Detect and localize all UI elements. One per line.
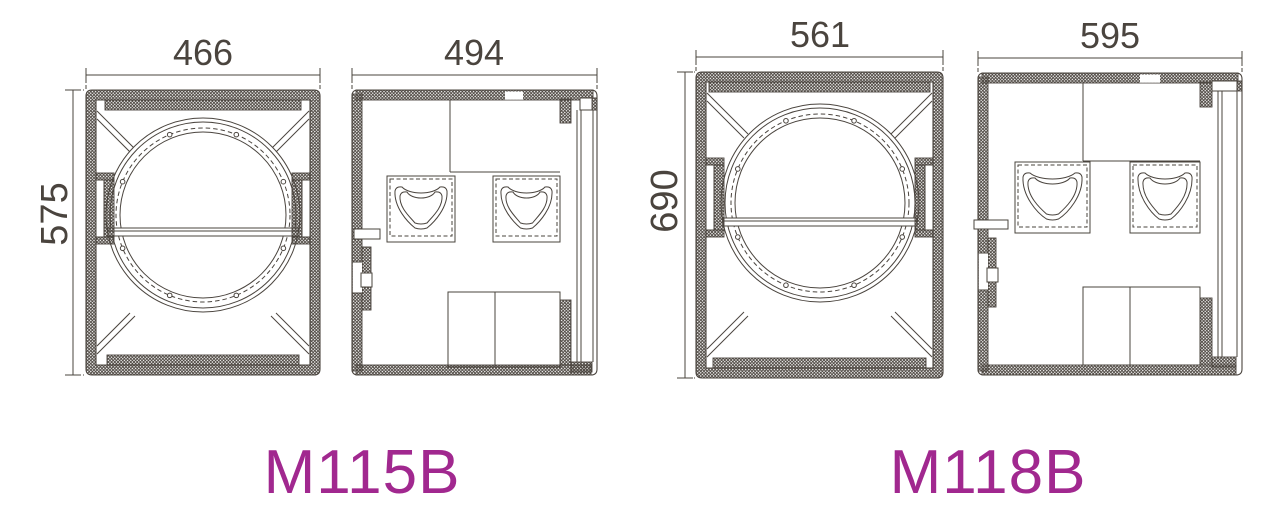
- m115b-side-view: [352, 90, 597, 375]
- center-brace-bar: [108, 228, 298, 236]
- dim-m115b-front-width: 466: [173, 32, 233, 73]
- dim-m118b-front-height: 690: [644, 169, 686, 232]
- dim-m118b-side-width: 595: [1080, 15, 1140, 56]
- dim-m115b-side-width: 494: [444, 32, 504, 73]
- chamber-divider: [1083, 83, 1200, 161]
- center-brace-bar: [723, 218, 917, 226]
- dim-m115b-front-height: 575: [34, 182, 76, 245]
- dim-m118b-front-width: 561: [790, 14, 850, 55]
- m118b-side-view: [974, 73, 1242, 375]
- technical-drawing-canvas: 466 494 561 595 575 690 M115B M118B: [0, 0, 1273, 525]
- m118b-front-view: [696, 72, 943, 378]
- woofer-rings: [721, 104, 919, 302]
- chamber-divider: [450, 100, 560, 172]
- port-tube-1: [1015, 162, 1090, 233]
- woofer-rings: [106, 118, 300, 312]
- m115b-front-view: [86, 90, 320, 375]
- bottom-brace-panels: [448, 292, 560, 367]
- port-tube-2: [493, 176, 560, 242]
- front-baffle: [560, 98, 597, 372]
- model-label-m115b: M115B: [222, 438, 502, 508]
- port-tube-1: [387, 176, 455, 242]
- bottom-brace-panels: [1083, 287, 1200, 365]
- model-label-m118b: M118B: [848, 438, 1128, 508]
- front-baffle: [1200, 81, 1242, 367]
- port-tube-2: [1130, 162, 1200, 233]
